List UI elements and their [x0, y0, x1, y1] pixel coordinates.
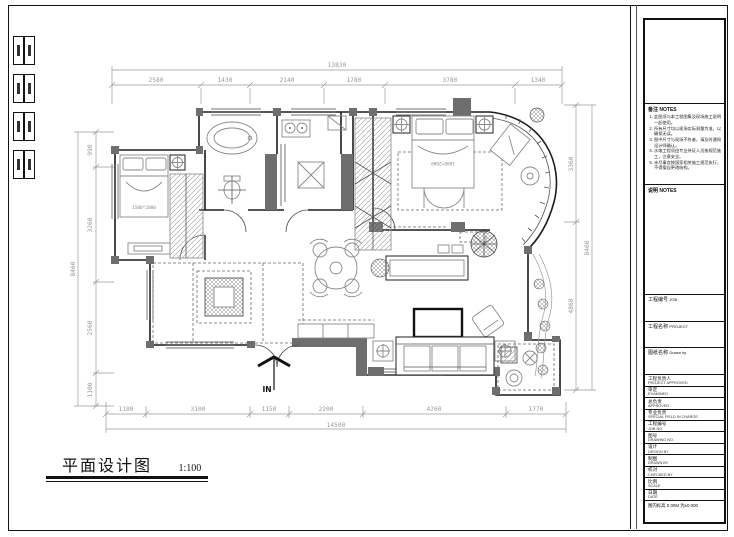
bed-size-label: 1500*2000 [132, 205, 156, 211]
stamp-pair [13, 150, 35, 179]
svg-text:8460: 8460 [584, 240, 591, 255]
svg-text:1340: 1340 [531, 77, 546, 84]
tb-row: 制图DRAWN BY [645, 455, 724, 466]
tb-row: 工程负责人PROJECT APPROVED [645, 375, 724, 386]
note-item: 未尽事宜按国家相关施工规范执行，不得擅自更改结构。 [654, 160, 721, 171]
stamp-cell [24, 36, 35, 65]
dimension-right: 3360 4860 8460 [564, 102, 596, 393]
dimension-top: 13830 2580 1430 2140 1780 3780 1340 [109, 62, 565, 104]
note-item: 水电工程须由专业持证人员按规范施工，注意安全。 [654, 148, 721, 159]
entry-label: IN [262, 385, 271, 394]
svg-text:4860: 4860 [568, 298, 575, 313]
tb-row: 比例SCALE [645, 478, 724, 489]
bench [298, 320, 374, 338]
tb-row: 审定EXAMINED [645, 387, 724, 398]
svg-text:2140: 2140 [280, 77, 295, 84]
balcony [490, 108, 552, 378]
tb-row: 专业负责SPECIAL FIELD IN CHARGE [645, 410, 724, 421]
armchair [471, 304, 504, 337]
drawing-title: 平面设计图 1:100 [62, 452, 201, 476]
svg-text:1770: 1770 [529, 406, 544, 413]
notes-heading: 备注 NOTES [648, 106, 721, 113]
svg-text:3780: 3780 [443, 77, 458, 84]
stamp-cell [13, 74, 24, 103]
drawing-scale: 1:100 [178, 463, 201, 474]
svg-text:1430: 1430 [218, 77, 233, 84]
note-item: 图中尺寸与现场不符者，请及时通知设计师确认。 [654, 137, 721, 148]
stamp-cell [13, 36, 24, 65]
svg-text:3360: 3360 [568, 156, 575, 171]
stamp-cell [13, 150, 24, 179]
dimension-left: 990 3260 2560 1100 8460 [70, 129, 114, 409]
spec-panel: 说明 NOTES [645, 185, 724, 295]
note-item: 此图须与本工程图集及现场施工说明一起使用。 [654, 114, 721, 125]
stamp-pair [13, 36, 35, 65]
tb-row: 校对CHECKED BY [645, 467, 724, 478]
title-block: 备注 NOTES 此图须与本工程图集及现场施工说明一起使用。 所有尺寸均以现场实… [643, 18, 726, 524]
svg-text:13830: 13830 [328, 62, 347, 69]
svg-text:990: 990 [87, 144, 94, 155]
svg-text:3260: 3260 [87, 217, 94, 232]
stamp-cell [24, 74, 35, 103]
svg-text:14500: 14500 [327, 422, 346, 429]
svg-text:1180: 1180 [119, 406, 134, 413]
svg-text:1780: 1780 [347, 77, 362, 84]
job-box: 工程编号 JOB [645, 295, 724, 322]
bed-size-label: 1800*2000 [431, 160, 455, 166]
floor-plan: 1500*2000 [36, 14, 630, 454]
title-underline-2 [46, 481, 208, 482]
svg-text:2580: 2580 [149, 77, 164, 84]
tb-row: 设计DESIGN BY [645, 444, 724, 455]
revision-stamp-strip [13, 36, 35, 179]
drawing-name-box: 图纸名称 Drawn by [645, 348, 724, 375]
dimension-bottom: 1180 3100 1150 2200 4260 1770 14500 [103, 402, 569, 433]
master-bedroom: 1800*2000 [393, 116, 502, 242]
project-box: 工程名称 PROJECT [645, 322, 724, 349]
stamp-cell [24, 112, 35, 141]
tb-row: 图号DRAWING NO. [645, 432, 724, 443]
windows [112, 109, 448, 375]
stamp-pair [13, 112, 35, 141]
tb-row: 日期DATE [645, 490, 724, 501]
titleblock-divider-line [630, 5, 631, 529]
kitchen [281, 116, 346, 206]
signature-rows: 工程负责人PROJECT APPROVED 审定EXAMINED 总负责APPR… [645, 375, 724, 501]
svg-text:1150: 1150 [262, 406, 277, 413]
notes-panel: 备注 NOTES 此图须与本工程图集及现场施工说明一起使用。 所有尺寸均以现场实… [645, 104, 724, 184]
tb-row: 工程编号JOB NO. [645, 421, 724, 432]
bedroom-2: 1500*2000 [120, 155, 203, 258]
note-item: 所有尺寸均以现场实际测量为准，以确保无误。 [654, 126, 721, 137]
tv-cabinet [414, 309, 462, 337]
svg-text:2560: 2560 [87, 320, 94, 335]
wardrobe-closet [355, 118, 391, 250]
stamp-cell [13, 112, 24, 141]
footer-note: 图内标高 0.00M 为±0.000 [645, 501, 724, 522]
tb-row: 总负责APPROVED [645, 398, 724, 409]
bathroom [207, 122, 257, 204]
sofa [396, 337, 494, 375]
title-underline [46, 476, 208, 479]
living-dining [298, 231, 515, 375]
drawing-title-text: 平面设计图 [62, 458, 152, 475]
spec-heading: 说明 NOTES [648, 187, 721, 194]
svg-text:4260: 4260 [427, 406, 442, 413]
svg-text:1100: 1100 [87, 382, 94, 397]
titleblock-divider-line-2 [636, 5, 637, 529]
logo-area [645, 20, 724, 104]
stamp-cell [24, 150, 35, 179]
svg-text:8460: 8460 [70, 261, 77, 276]
stamp-pair [13, 74, 35, 103]
entry-arrow: IN [258, 357, 290, 394]
drawing-sheet: 1500*2000 [0, 0, 734, 537]
svg-text:3100: 3100 [191, 406, 206, 413]
tatami-room [153, 263, 303, 343]
svg-text:2200: 2200 [319, 406, 334, 413]
